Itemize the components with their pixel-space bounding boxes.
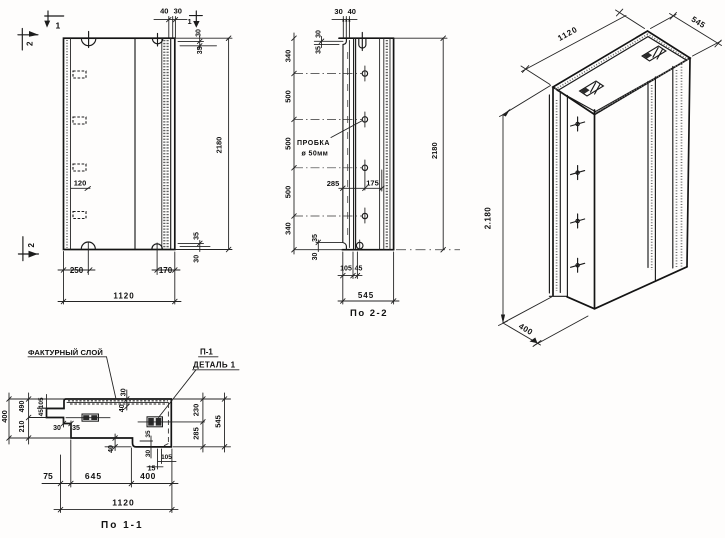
svg-text:75: 75 <box>43 471 53 481</box>
svg-text:1: 1 <box>56 21 61 31</box>
svg-text:645: 645 <box>85 471 102 481</box>
svg-text:500: 500 <box>284 137 293 150</box>
svg-text:490: 490 <box>19 401 26 413</box>
svg-text:500: 500 <box>284 90 293 103</box>
svg-text:30: 30 <box>334 7 342 16</box>
svg-text:По 1-1: По 1-1 <box>101 520 144 531</box>
svg-text:400: 400 <box>0 410 9 423</box>
svg-text:1120: 1120 <box>112 498 134 508</box>
svg-text:35: 35 <box>194 232 201 240</box>
svg-text:170: 170 <box>159 266 173 275</box>
svg-text:285: 285 <box>192 427 201 440</box>
svg-text:ПРОБКА: ПРОБКА <box>297 140 330 147</box>
svg-text:30: 30 <box>195 29 202 37</box>
svg-text:120: 120 <box>74 179 87 188</box>
svg-text:40: 40 <box>348 7 356 16</box>
svg-text:40: 40 <box>160 7 168 16</box>
svg-text:105: 105 <box>340 266 352 273</box>
svg-text:45: 45 <box>38 409 45 417</box>
svg-text:30: 30 <box>53 425 61 432</box>
svg-text:340: 340 <box>284 50 293 63</box>
svg-text:2180: 2180 <box>215 137 224 154</box>
svg-text:400: 400 <box>140 471 156 481</box>
svg-text:1: 1 <box>188 17 192 26</box>
svg-text:ø 50мм: ø 50мм <box>302 151 329 158</box>
svg-text:2.180: 2.180 <box>484 207 493 230</box>
svg-text:45: 45 <box>355 266 363 273</box>
svg-text:30: 30 <box>174 7 182 16</box>
svg-text:ФАКТУРНЫЙ СЛОЙ: ФАКТУРНЫЙ СЛОЙ <box>28 348 103 357</box>
svg-text:175: 175 <box>366 179 379 188</box>
svg-text:340: 340 <box>284 222 293 235</box>
svg-text:250: 250 <box>70 266 84 275</box>
svg-text:230: 230 <box>192 404 201 417</box>
svg-text:2: 2 <box>27 243 36 248</box>
svg-text:105: 105 <box>161 454 172 461</box>
svg-text:По 2-2: По 2-2 <box>350 308 388 319</box>
svg-text:545: 545 <box>358 291 374 300</box>
svg-text:2: 2 <box>26 41 35 46</box>
svg-text:П-1: П-1 <box>200 348 213 357</box>
svg-text:35: 35 <box>72 425 80 432</box>
svg-text:40: 40 <box>108 445 115 453</box>
svg-text:30: 30 <box>312 253 319 261</box>
svg-text:105: 105 <box>38 397 45 408</box>
svg-text:2180: 2180 <box>430 142 439 159</box>
svg-text:30: 30 <box>194 255 201 263</box>
svg-text:210: 210 <box>19 421 26 433</box>
svg-text:1120: 1120 <box>113 292 134 301</box>
svg-text:285: 285 <box>327 179 340 188</box>
svg-text:500: 500 <box>284 186 293 199</box>
svg-text:ДЕТАЛЬ 1: ДЕТАЛЬ 1 <box>193 361 236 370</box>
svg-text:545: 545 <box>214 415 223 428</box>
